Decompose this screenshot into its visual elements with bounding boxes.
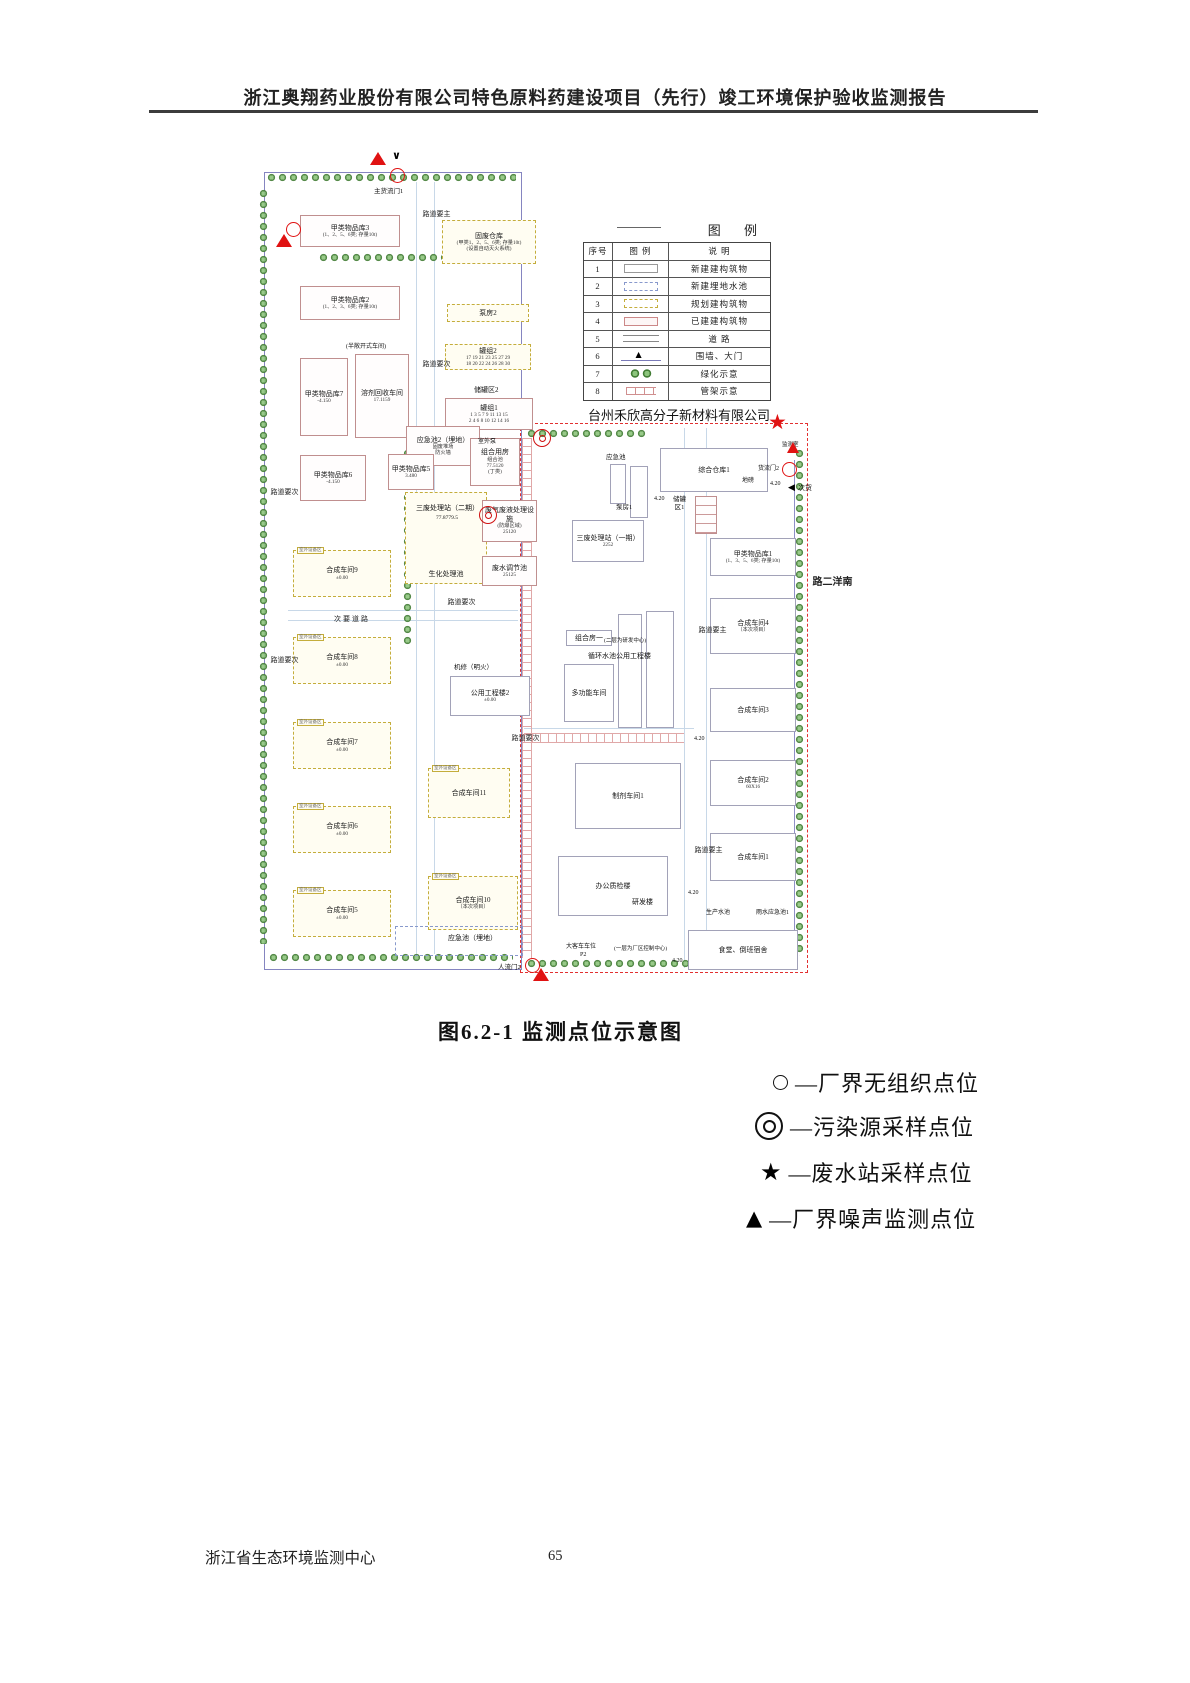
road-char: 次: [468, 598, 475, 605]
legend-swatch-cell: [612, 296, 668, 313]
building-label-line: 罐组2: [466, 347, 510, 355]
source-sampling-double-circle-icon: [533, 429, 551, 447]
existing-building-swatch-icon: [624, 317, 658, 326]
building-label-line: 甲类物品库6: [314, 471, 353, 479]
page-number: 65: [548, 1548, 563, 1565]
legend-no-cell: 4: [584, 313, 612, 330]
legend-no-cell: 2: [584, 278, 612, 295]
building-label-line: 公用工程楼2: [471, 689, 510, 697]
building-xunhuan-a: [618, 614, 642, 728]
tree-row-icon: [318, 252, 448, 264]
label-semi-open-note: (半敞开式车间): [346, 344, 386, 351]
building-sanfei-yiqi: 三废处理站（一期）2252: [572, 520, 644, 562]
legend-row: 5道 路: [584, 330, 770, 348]
label-xunhuan-label: 循环水池公用工程楼: [588, 652, 651, 660]
legend-no-cell: 1: [584, 261, 612, 278]
building-label-line: 废水调节池: [492, 564, 527, 572]
new-building-swatch-icon: [624, 264, 658, 273]
building-label-line: （本次项目）: [456, 904, 491, 910]
road-char: 路: [447, 598, 454, 605]
label-gate-people2: 人流门2: [498, 964, 521, 972]
building-guanzu2: 罐组217 19 21 23 25 27 2918 20 22 24 26 28…: [445, 344, 531, 370]
building-zonghe-cangku1: 综合仓库1: [660, 448, 768, 492]
label-sanfei-erqi: 三废处理站（二期）: [416, 504, 479, 512]
planned-building-swatch-icon: [624, 299, 658, 308]
road-char: 道: [454, 598, 461, 605]
road-char: 路: [810, 576, 820, 586]
road-char: 要: [525, 734, 532, 741]
legend-swatch-cell: [612, 331, 668, 348]
wastewater-star-icon: ★: [760, 1160, 782, 1184]
label-elev-420-c: 4.20: [694, 736, 705, 743]
building-label-line: (1、3、5、6类; 存量10t): [726, 558, 780, 564]
building-label-line: 合成车间7: [326, 738, 358, 746]
legend-table: 图 例 序号图 例说 明1新建建构筑物2新建埋地水池3规划建构筑物4已建建构筑物…: [583, 220, 771, 401]
pipe-rack: [524, 733, 684, 743]
building-label: 溶剂回收车间17.1159: [361, 389, 403, 404]
building-label-line: (1、2、3、6类; 存量10t): [323, 304, 377, 310]
building-label-line: 25120: [483, 529, 536, 535]
building-label: 公用工程楼2±0.00: [471, 689, 510, 704]
building-label-line: 甲类物品库1: [726, 550, 780, 558]
label-yanfalou: 研发楼: [632, 898, 653, 906]
building-label-line: 应急池2（埋地）: [417, 436, 470, 444]
road-char: 要: [436, 210, 443, 217]
road-char: 道: [277, 488, 284, 495]
building-hecheng11: 室外设备区合成车间11: [428, 768, 510, 818]
building-hecheng2: 合成车间260X16: [710, 760, 796, 806]
fenceline-point-circle-icon: [390, 168, 405, 183]
legend-row: 2新建埋地水池: [584, 277, 770, 295]
legend-desc-cell: 新建埋地水池: [668, 278, 770, 295]
road-char: 路: [270, 488, 277, 495]
noise-monitor-triangle-icon: [276, 234, 292, 247]
building-label-line: ±0.00: [326, 915, 358, 921]
building-label: 生化处理池: [429, 570, 464, 583]
source-sampling-double-circle-icon: [755, 1112, 783, 1140]
building-label-line: 甲类物品库7: [305, 390, 344, 398]
source-sampling-double-circle-icon: [479, 506, 497, 524]
building-label-line: ±0.00: [326, 831, 358, 837]
tree-row-icon: [258, 188, 270, 944]
building-label-line: 组合房一: [575, 634, 603, 642]
point-legend-row: ▲—厂界噪声监测点位: [746, 1202, 976, 1234]
building-label-line: (设置自动灭火系统): [457, 246, 522, 252]
label-bengfang1: 泵房1: [616, 504, 632, 512]
legend-swatch-cell: ▲: [612, 348, 668, 365]
building-jialei6: 甲类物品库6-4.150: [300, 455, 366, 501]
building-label-line: 2 4 6 8 10 12 14 16: [469, 418, 509, 424]
building-label: 三废处理站（一期）2252: [577, 534, 640, 549]
road-char: 路: [698, 626, 705, 633]
building-label: 多功能车间: [572, 689, 607, 697]
road-char: 洋: [830, 576, 840, 586]
greenery-swatch-icon: [629, 368, 653, 379]
building-feishui-tiaojie: 废水调节池25125: [482, 556, 537, 586]
road-char: 南: [840, 576, 850, 586]
legend-no-cell: 7: [584, 366, 612, 383]
road-char: 要: [461, 598, 468, 605]
road-name-road-sec-5: 次要道路: [447, 598, 475, 612]
gate-arrow-down-icon: ∨: [392, 150, 401, 161]
building-label: 泵房2: [479, 309, 497, 317]
road-name-road-sec-3: 次要道路: [270, 656, 298, 670]
noise-monitor-triangle-icon: [787, 442, 799, 453]
point-legend-label: —厂界无组织点位: [795, 1066, 979, 1098]
building-label: 组合房一: [575, 634, 603, 642]
legend-line: [617, 227, 661, 228]
building-label: 甲类物品库53.480: [392, 465, 431, 480]
building-jialei3: 甲类物品库3(1、2、5、6类; 存量10t): [300, 215, 400, 247]
building-hecheng5: 室外设备区合成车间5±0.00: [293, 890, 391, 937]
building-label-line: 办公质检楼: [596, 882, 631, 890]
legend-row: 3规划建构筑物: [584, 295, 770, 313]
equipment-area-tag: 室外设备区: [432, 873, 459, 880]
road-char: 要: [284, 488, 291, 495]
noise-triangle-icon: ▲: [746, 1208, 762, 1229]
road-char: 要: [708, 846, 715, 853]
road-name-road-sec-2: 次要道路: [270, 488, 298, 502]
building-label-line: 罐组1: [469, 404, 509, 412]
label-shengchan-shuichi: 生产水池: [706, 910, 730, 917]
figure-caption: 图6.2-1 监测点位示意图: [438, 1016, 683, 1046]
building-label: 合成车间11: [452, 789, 487, 797]
building-label-line: ±0.00: [326, 662, 358, 668]
label-yingjichi-right: 应急池: [606, 454, 626, 462]
building-label-line: (1、2、5、6类; 存量10t): [323, 232, 377, 238]
building-label-line: 三废处理站（一期）: [577, 534, 640, 542]
road-char: 路: [511, 734, 518, 741]
building-label-line: 合成车间9: [326, 566, 358, 574]
label-outdoor-pump: 室外泵: [478, 439, 496, 446]
building-label-line: 2252: [577, 542, 640, 548]
point-legend-row: —污染源采样点位: [755, 1110, 974, 1142]
building-label: 甲类物品库3(1、2、5、6类; 存量10t): [323, 224, 377, 239]
equipment-area-tag: 室外设备区: [297, 634, 324, 641]
point-legend-label: —厂界噪声监测点位: [769, 1202, 976, 1234]
noise-monitor-triangle-icon: [533, 968, 549, 981]
fence-gate-swatch-icon: ▲: [621, 352, 661, 361]
road-char: 路: [422, 210, 429, 217]
legend-desc-cell: 管架示意: [668, 383, 770, 400]
building-label-line: 合成车间1: [737, 853, 769, 861]
legend-row: 4已建建构筑物: [584, 312, 770, 330]
building-gongyong-lou2: 公用工程楼2±0.00: [450, 676, 530, 716]
building-label: 合成车间7±0.00: [326, 738, 358, 753]
building-label-line: 合成车间11: [452, 789, 487, 797]
building-label: 合成车间5±0.00: [326, 906, 358, 921]
building-jialei5: 甲类物品库53.480: [388, 454, 434, 490]
label-bus-parking-p2: P2: [580, 952, 586, 959]
label-elev-420-e: 4.20: [672, 958, 683, 965]
road-name-road-main-2: 主要道路: [698, 626, 726, 640]
road-line: [524, 728, 694, 729]
legend-desc-cell: 规划建构筑物: [668, 296, 770, 313]
label-gate-cargo2: 货流门2: [758, 466, 779, 473]
equipment-area-tag: 室外设备区: [297, 719, 324, 726]
building-label-line: 25125: [492, 572, 527, 578]
building-label-line: 甲类物品库2: [323, 296, 377, 304]
building-gufei-cangku: 固废仓库(甲类1、2、5、6类; 存量10t)(设置自动灭火系统): [442, 220, 536, 264]
building-label: 办公质检楼: [596, 882, 631, 890]
building-hecheng8: 室外设备区合成车间8±0.00: [293, 637, 391, 684]
building-hecheng3: 合成车间3: [710, 688, 796, 732]
building-label-line: 固废仓库: [457, 232, 522, 240]
legend-header-row: 序号图 例说 明: [584, 243, 770, 260]
building-label-line: ±0.00: [471, 697, 510, 703]
building-label-line: 17.1159: [361, 397, 403, 403]
road-char: 道: [705, 626, 712, 633]
building-rongji-huishou: 溶剂回收车间17.1159: [355, 354, 409, 438]
building-label: 废水调节池25125: [492, 564, 527, 579]
label-company-north: 台州禾欣高分子新材料有限公司: [588, 408, 770, 424]
building-hecheng7: 室外设备区合成车间7±0.00: [293, 722, 391, 769]
legend-desc-cell: 道 路: [668, 331, 770, 348]
label-cihuo: 次货: [798, 484, 812, 492]
building-hecheng9: 室外设备区合成车间9±0.00: [293, 550, 391, 597]
point-legend-row: ★—废水站采样点位: [760, 1156, 973, 1188]
building-shitang-sushe: 食堂、倒班宿舍: [688, 930, 798, 970]
road-char: 二: [820, 576, 830, 586]
road-name-road-sec-6: 次要道路: [511, 734, 539, 748]
point-legend-label: —废水站采样点位: [789, 1156, 973, 1188]
road-name-road-sec-4: 次要道路: [334, 614, 370, 624]
building-label-line: ±0.00: [326, 747, 358, 753]
fenceline-point-circle-icon: [782, 462, 797, 477]
building-label-line: -4.150: [305, 398, 344, 404]
building-chuguan-qu1-tanks: [695, 496, 717, 534]
legend-desc-cell: 围墙、大门: [668, 348, 770, 365]
building-label-line: 食堂、倒班宿舍: [719, 946, 768, 954]
legend-swatch-cell: [612, 313, 668, 330]
building-label-line: 合成车间10: [456, 896, 491, 904]
building-label: 合成车间260X16: [737, 776, 769, 791]
point-legend-label: —污染源采样点位: [790, 1110, 974, 1142]
legend-row: 7绿化示意: [584, 365, 770, 383]
label-elev-420-a: 4.20: [770, 481, 781, 488]
building-label-line: 合成车间4: [737, 619, 769, 627]
label-tank-area2: 储罐区2: [474, 386, 499, 394]
building-bengfang2: 泵房2: [447, 304, 529, 322]
report-page: 浙江奥翔药业股份有限公司特色原料药建设项目（先行）竣工环境保护验收监测报告 甲类…: [0, 0, 1190, 1683]
legend-header-cell: 序号: [584, 243, 612, 260]
road-char: 次: [291, 488, 298, 495]
label-gate-main-cargo: 主货流门1: [374, 188, 403, 196]
label-dibang: 地磅: [742, 478, 754, 485]
inner-dot: [485, 512, 492, 519]
building-label: 甲类物品库7-4.150: [305, 390, 344, 405]
road-char: 道: [518, 734, 525, 741]
road-char: 次: [532, 734, 539, 741]
building-label-line: -4.150: [314, 479, 353, 485]
road-char: 要: [284, 656, 291, 663]
building-label-line: 18 20 22 24 26 28 30: [466, 361, 510, 367]
building-label-line: ±0.00: [326, 575, 358, 581]
legend-title: 图 例: [583, 220, 771, 239]
building-label-line: 制剂车间1: [612, 792, 644, 800]
road-char: 路: [694, 846, 701, 853]
report-header: 浙江奥翔药业股份有限公司特色原料药建设项目（先行）竣工环境保护验收监测报告: [0, 84, 1190, 110]
building-label-line: 组合用房: [481, 448, 509, 456]
road-char: 路: [422, 360, 429, 367]
building-label-line: 3.480: [392, 473, 431, 479]
legend-swatch-cell: [612, 366, 668, 383]
building-label: 食堂、倒班宿舍: [719, 946, 768, 954]
fenceline-point-circle-icon: [773, 1075, 788, 1090]
building-jialei1: 甲类物品库1(1、3、5、6类; 存量10t): [710, 538, 796, 576]
building-xunhuan-b: [646, 611, 674, 728]
building-label: 组合用房组合池77.5120(丁类): [481, 448, 509, 475]
label-yushui-yingjichi1: 雨水应急池1: [756, 910, 789, 917]
road-char: 主: [719, 626, 726, 633]
label-tank-area1: 储罐区1: [672, 496, 687, 512]
building-label-line: （本次项目）: [737, 627, 769, 633]
legend-desc-cell: 新建建构筑物: [668, 261, 770, 278]
gate-arrow-left-icon: ◀: [788, 484, 795, 493]
legend-grid: 序号图 例说 明1新建建构筑物2新建埋地水池3规划建构筑物4已建建构筑物5道 路…: [583, 242, 771, 401]
building-bengfang1-box: [630, 466, 648, 518]
legend-desc-cell: 已建建构筑物: [668, 313, 770, 330]
road-char: 要: [712, 626, 719, 633]
road-char: 要: [436, 360, 443, 367]
road-char: 次: [443, 360, 450, 367]
building-label-line: 合成车间3: [737, 706, 769, 714]
label-yiceng-note: (一层为厂区控制中心): [614, 946, 667, 953]
building-jialei7: 甲类物品库7-4.150: [300, 358, 348, 436]
building-label: 综合仓库1: [698, 466, 730, 474]
building-label: 罐组11 3 5 7 9 11 13 152 4 6 8 10 12 14 16: [469, 404, 509, 425]
road-char: 主: [715, 846, 722, 853]
label-bus-parking: 大客车车位: [566, 944, 596, 951]
header-rule: [149, 110, 1038, 113]
building-label: 合成车间4（本次项目）: [737, 619, 769, 634]
label-sanfei-erqi-elev: 77.8779.5: [436, 515, 458, 522]
pipe-rack-swatch-icon: [626, 387, 656, 395]
road-name-road-main-1: 主要道路: [422, 210, 450, 224]
road-swatch-icon: [623, 335, 659, 342]
road-char: 道: [277, 656, 284, 663]
building-label: 合成车间8±0.00: [326, 653, 358, 668]
building-label: 制剂车间1: [612, 792, 644, 800]
building-label-line: 60X16: [737, 784, 769, 790]
building-label-line: 合成车间5: [326, 906, 358, 914]
building-label-line: 多功能车间: [572, 689, 607, 697]
building-label: 合成车间6±0.00: [326, 822, 358, 837]
label-yingjichi-buried: 应急池（埋地）: [448, 934, 497, 942]
road-char: 主: [443, 210, 450, 217]
equipment-area-tag: 室外设备区: [297, 887, 324, 894]
footer-org: 浙江省生态环境监测中心: [205, 1546, 376, 1568]
building-label: 合成车间10（本次项目）: [456, 896, 491, 911]
road-name-road-sec-1: 次要道路: [422, 360, 450, 374]
building-duogongneng: 多功能车间: [564, 664, 614, 722]
legend-no-cell: 3: [584, 296, 612, 313]
building-label: 甲类物品库1(1、3、5、6类; 存量10t): [726, 550, 780, 565]
building-label: 甲类物品库2(1、2、3、6类; 存量10t): [323, 296, 377, 311]
road-name-road-main-3: 主要道路: [694, 846, 722, 860]
road-char: 路: [270, 656, 277, 663]
building-hecheng1: 合成车间1: [710, 833, 796, 881]
building-label: 合成车间9±0.00: [326, 566, 358, 581]
road-char: 次: [291, 656, 298, 663]
equipment-area-tag: 室外设备区: [432, 765, 459, 772]
legend-swatch-cell: [612, 383, 668, 400]
wastewater-star-icon: ★: [768, 412, 787, 433]
building-label-line: 合成车间2: [737, 776, 769, 784]
building-label-line: 综合仓库1: [698, 466, 730, 474]
building-label: 固废仓库(甲类1、2、5、6类; 存量10t)(设置自动灭火系统): [457, 232, 522, 253]
building-label-line: 生化处理池: [429, 570, 464, 578]
road-char: 道: [429, 210, 436, 217]
legend-no-cell: 8: [584, 383, 612, 400]
gate-triangle-icon: ▲: [636, 351, 643, 359]
inner-dot: [763, 1120, 776, 1133]
label-elev-420-b: 4.20: [654, 496, 665, 503]
building-label: 合成车间1: [737, 853, 769, 861]
building-label-line: (丁类): [481, 469, 509, 475]
buried-pool-swatch-icon: [624, 282, 658, 291]
building-label: 罐组217 19 21 23 25 27 2918 20 22 24 26 28…: [466, 347, 510, 368]
legend-row: 1新建建构筑物: [584, 260, 770, 278]
equipment-area-tag: 室外设备区: [297, 803, 324, 810]
building-hecheng10: 室外设备区合成车间10（本次项目）: [428, 876, 518, 930]
legend-swatch-cell: [612, 278, 668, 295]
building-zhiji1: 制剂车间1: [575, 763, 681, 829]
legend-row: 6▲围墙、大门: [584, 347, 770, 365]
label-jixiu: 机修（明火）: [454, 664, 493, 672]
legend-desc-cell: 绿化示意: [668, 366, 770, 383]
building-yingjichi-right-box: [610, 464, 626, 504]
label-elev-420-d: 4.20: [688, 890, 699, 897]
building-jialei2: 甲类物品库2(1、2、3、6类; 存量10t): [300, 286, 400, 320]
building-hecheng6: 室外设备区合成车间6±0.00: [293, 806, 391, 853]
road-char: 道: [429, 360, 436, 367]
building-label-line: 合成车间8: [326, 653, 358, 661]
noise-monitor-triangle-icon: [370, 152, 386, 165]
inner-dot: [539, 435, 546, 442]
road-char: 道: [701, 846, 708, 853]
legend-no-cell: 5: [584, 331, 612, 348]
equipment-area-tag: 室外设备区: [297, 547, 324, 554]
building-label-line: 溶剂回收车间: [361, 389, 403, 397]
building-label-line: 甲类物品库3: [323, 224, 377, 232]
building-label-line: 甲类物品库5: [392, 465, 431, 473]
label-erceng-note: (二层为研发中心): [604, 638, 646, 645]
legend-row: 8管架示意: [584, 382, 770, 400]
building-label-line: 泵房2: [479, 309, 497, 317]
building-label: 合成车间3: [737, 706, 769, 714]
legend-swatch-cell: [612, 261, 668, 278]
road-name-road-nanyang: 南洋二路: [810, 576, 850, 597]
point-legend-row: —厂界无组织点位: [773, 1066, 979, 1098]
building-bangong-zhijian: 办公质检楼: [558, 856, 668, 916]
legend-no-cell: 6: [584, 348, 612, 365]
legend-header-cell: 说 明: [668, 243, 770, 260]
legend-header-cell: 图 例: [612, 243, 668, 260]
building-label: 甲类物品库6-4.150: [314, 471, 353, 486]
building-label-line: 合成车间6: [326, 822, 358, 830]
